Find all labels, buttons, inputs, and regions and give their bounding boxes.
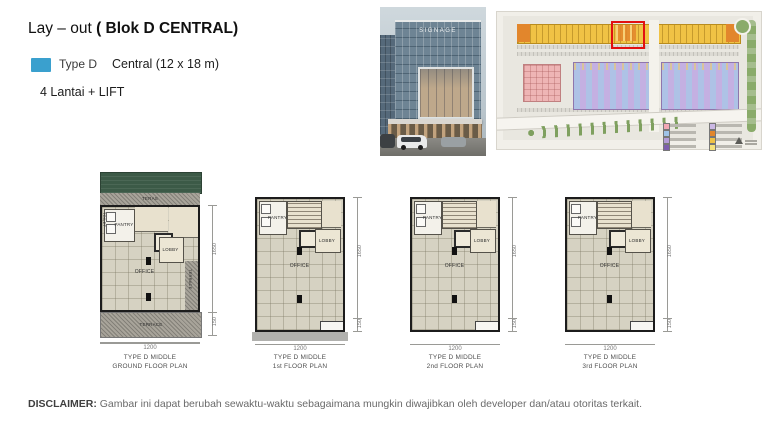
siteplan-pink-block — [523, 64, 561, 102]
toilet-room — [106, 212, 116, 222]
type-d-color-swatch — [31, 58, 51, 72]
render-feature-window — [418, 67, 474, 119]
upper-right-room — [169, 207, 198, 238]
toilet-room — [261, 204, 271, 214]
dim-line — [667, 197, 668, 332]
siteplan-canopy-dots — [662, 63, 738, 70]
plan-body: PANTRY LOBBY OFFICE — [410, 197, 500, 332]
plan-caption-line2: 2nd FLOOR PLAN — [405, 363, 505, 372]
page-title-block-name: ( Blok D CENTRAL) — [96, 20, 238, 37]
vertical-dimension: 1650 150 — [206, 205, 220, 336]
building-render-image: SIGNAGE — [380, 7, 486, 156]
type-size-value: Central (12 x 18 m) — [112, 57, 219, 71]
plan-caption: TYPE D MIDDLE2nd FLOOR PLAN — [405, 354, 505, 372]
lobby-label: LOBBY — [316, 238, 338, 243]
plan-caption-line2: 3rd FLOOR PLAN — [560, 363, 660, 372]
floor-plan-2nd: PANTRY LOBBY OFFICE 1650 150 1200 TYPE D… — [410, 172, 522, 382]
column — [297, 247, 302, 255]
siteplan-green-verge — [747, 20, 756, 132]
column — [607, 295, 612, 303]
pantry-room: PANTRY — [569, 201, 597, 235]
entry-foyer — [135, 207, 168, 232]
plan-body: PANTRY LOBBY OFFICE — [255, 197, 345, 332]
office-label: OFFICE — [272, 263, 327, 269]
dim-tick — [353, 197, 362, 198]
canopy-apron — [252, 332, 348, 341]
width-dimension: 1200 — [410, 344, 500, 352]
lobby-label: LOBBY — [160, 247, 181, 252]
depth-dim-label: 1650 — [512, 245, 518, 257]
staircase — [442, 201, 477, 229]
front-dim-label: 150 — [512, 319, 518, 328]
legend-swatch — [709, 144, 716, 151]
toilet-label: TOILET — [102, 212, 107, 227]
column — [607, 247, 612, 255]
blok-d-highlight-box — [611, 21, 645, 49]
page-title-prefix: Lay – out — [28, 20, 96, 37]
siteplan-map — [497, 12, 761, 149]
plan-body: PANTRY LOBBY OFFICE — [565, 197, 655, 332]
canopy-roof — [100, 172, 202, 194]
siteplan-roundabout — [734, 18, 751, 35]
front-dim-label: 150 — [212, 317, 218, 326]
legend-text-line — [670, 138, 696, 141]
staircase — [597, 201, 632, 229]
render-signage-text: SIGNAGE — [395, 28, 481, 34]
lobby-label: LOBBY — [626, 238, 648, 243]
upper-right-room — [322, 201, 341, 228]
plan-caption-line1: TYPE D MIDDLE — [405, 354, 505, 363]
legend-swatch — [663, 123, 670, 130]
rear-terrace-band: TERRACE — [100, 312, 202, 338]
legend-swatch — [663, 144, 670, 151]
legend-swatch — [709, 123, 716, 130]
plan-caption-line1: TYPE D MIDDLE — [560, 354, 660, 363]
plan-caption-line2: 1st FLOOR PLAN — [250, 363, 350, 372]
render-car-dark — [380, 134, 395, 148]
page-title: Lay – out ( Blok D CENTRAL) — [28, 20, 238, 38]
floors-note: 4 Lantai + LIFT — [40, 85, 124, 99]
plan-caption: TYPE D MIDDLE1st FLOOR PLAN — [250, 354, 350, 372]
column — [297, 295, 302, 303]
depth-dim-label: 1650 — [357, 245, 363, 257]
lobby-room: LOBBY — [159, 237, 184, 263]
legend-text-line — [670, 145, 696, 148]
lobby-room: LOBBY — [625, 229, 651, 253]
front-dim-label: 150 — [667, 319, 673, 328]
siteplan-canopy-dots — [574, 63, 650, 70]
legend-text-line — [716, 145, 742, 148]
plan-caption-line1: TYPE D MIDDLE — [250, 354, 350, 363]
slide: Lay – out ( Blok D CENTRAL) Type D Centr… — [0, 0, 768, 432]
column — [146, 293, 151, 301]
front-dim-label: 150 — [357, 319, 363, 328]
pantry-label: PANTRY — [578, 215, 596, 220]
dim-tick — [663, 197, 672, 198]
siteplan-purple-block-b — [661, 62, 739, 110]
plan-body: TOILET PANTRY LOBBY TERRACE OFFICE — [100, 205, 200, 312]
dim-line — [357, 197, 358, 332]
render-ground — [380, 138, 486, 156]
dim-tick — [208, 335, 217, 336]
legend-swatch — [663, 137, 670, 144]
siteplan-corner-unit-left — [517, 24, 530, 42]
column — [452, 247, 457, 255]
plan-caption: TYPE D MIDDLE3rd FLOOR PLAN — [560, 354, 660, 372]
terrace-label-rear: TERRACE — [101, 322, 201, 327]
column — [452, 295, 457, 303]
floor-plan-3rd: PANTRY LOBBY OFFICE 1650 150 1200 TYPE D… — [565, 172, 677, 382]
dim-line — [512, 197, 513, 332]
floor-notch — [630, 321, 653, 330]
legend-text-line — [716, 131, 742, 134]
teras-label: TERAS — [100, 196, 200, 201]
pantry-room: PANTRY — [259, 201, 287, 235]
side-terrace: TERRACE — [185, 261, 198, 310]
legend-text-line — [670, 131, 696, 134]
pantry-room: PANTRY — [414, 201, 442, 235]
vertical-dimension: 1650 150 — [351, 197, 365, 332]
legend-swatch — [709, 137, 716, 144]
lobby-room: LOBBY — [470, 229, 496, 253]
car-wheel — [401, 145, 406, 150]
siteplan-purple-block-a — [573, 62, 651, 110]
legend-swatch — [709, 130, 716, 137]
siteplan-parking-strip — [517, 52, 739, 56]
architect-logo-icon — [735, 137, 743, 144]
floor-plan-1st: PANTRY LOBBY OFFICE 1650 150 1200 TYPE D… — [255, 172, 367, 382]
architect-logo-text-lines — [745, 140, 757, 142]
office-label: OFFICE — [117, 269, 172, 275]
dim-tick — [508, 331, 517, 332]
car-window — [401, 137, 421, 142]
toilet-room — [571, 204, 581, 214]
disclaimer-text: Gambar ini dapat berubah sewaktu-waktu s… — [97, 398, 642, 410]
car-wheel — [418, 145, 423, 150]
legend-swatch — [663, 130, 670, 137]
dim-tick — [208, 312, 217, 313]
dim-tick — [663, 331, 672, 332]
dim-tick — [353, 331, 362, 332]
disclaimer: DISCLAIMER: Gambar ini dapat berubah sew… — [28, 398, 748, 410]
render-car-white — [397, 135, 427, 148]
depth-dim-label: 1650 — [667, 245, 673, 257]
floor-notch — [320, 321, 343, 330]
floor-notch — [475, 321, 498, 330]
lobby-label: LOBBY — [471, 238, 493, 243]
plan-caption-line1: TYPE D MIDDLE — [100, 354, 200, 363]
pantry-room: TOILET PANTRY — [104, 209, 135, 242]
legend-text-line — [670, 124, 696, 127]
disclaimer-label: DISCLAIMER: — [28, 398, 97, 410]
render-car-gray — [441, 137, 466, 147]
office-label: OFFICE — [427, 263, 482, 269]
upper-right-room — [477, 201, 496, 228]
pantry-label: PANTRY — [423, 215, 441, 220]
upper-right-room — [632, 201, 651, 228]
vertical-dimension: 1650 150 — [506, 197, 520, 332]
office-label: OFFICE — [582, 263, 637, 269]
floor-plan-ground: TERAS TOILET PANTRY LOBBY TERRACE OFFICE… — [100, 172, 222, 382]
dim-tick — [508, 197, 517, 198]
plan-caption: TYPE D MIDDLEGROUND FLOOR PLAN — [100, 354, 200, 372]
terrace-label-side: TERRACE — [188, 269, 193, 290]
width-dimension: 1200 — [255, 344, 345, 352]
toilet-room — [416, 204, 426, 214]
lobby-room: LOBBY — [315, 229, 341, 253]
width-dimension: 1200 — [100, 342, 200, 351]
column — [146, 257, 151, 265]
front-teras-band: TERAS — [100, 193, 200, 205]
pantry-label: PANTRY — [114, 222, 134, 227]
vertical-dimension: 1650 150 — [661, 197, 675, 332]
staircase — [287, 201, 322, 229]
type-label: Type D — [59, 57, 97, 71]
pantry-label: PANTRY — [268, 215, 286, 220]
width-dimension: 1200 — [565, 344, 655, 352]
depth-dim-label: 1650 — [212, 243, 218, 255]
plan-caption-line2: GROUND FLOOR PLAN — [100, 363, 200, 372]
dim-tick — [208, 205, 217, 206]
legend-text-line — [716, 124, 742, 127]
